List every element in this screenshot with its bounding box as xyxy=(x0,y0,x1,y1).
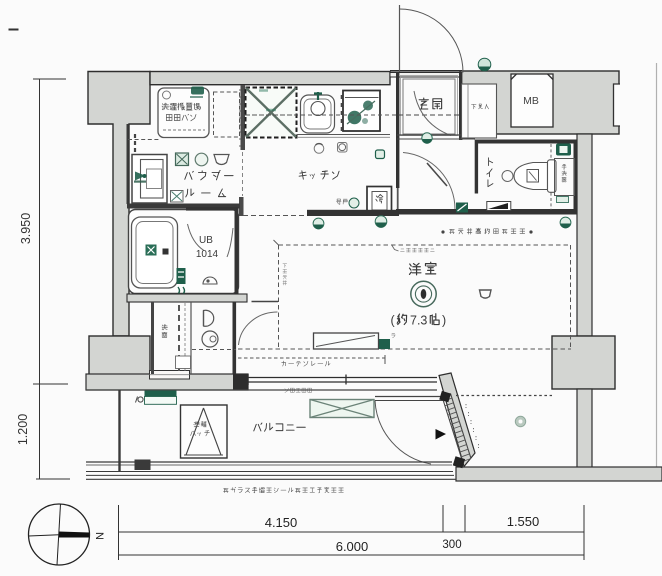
svg-text:6.000: 6.000 xyxy=(336,539,369,554)
svg-text:1.200: 1.200 xyxy=(16,414,30,445)
svg-text:N: N xyxy=(93,532,105,540)
svg-text:MB: MB xyxy=(523,95,539,107)
svg-text:1.550: 1.550 xyxy=(507,514,540,529)
svg-text:7.3: 7.3 xyxy=(410,314,427,328)
svg-text:4.150: 4.150 xyxy=(265,515,298,530)
svg-text:): ) xyxy=(442,314,446,328)
svg-text:UB: UB xyxy=(199,235,213,246)
svg-text:300: 300 xyxy=(442,539,461,551)
svg-text:1014: 1014 xyxy=(196,249,219,260)
svg-text:3.950: 3.950 xyxy=(19,213,33,244)
